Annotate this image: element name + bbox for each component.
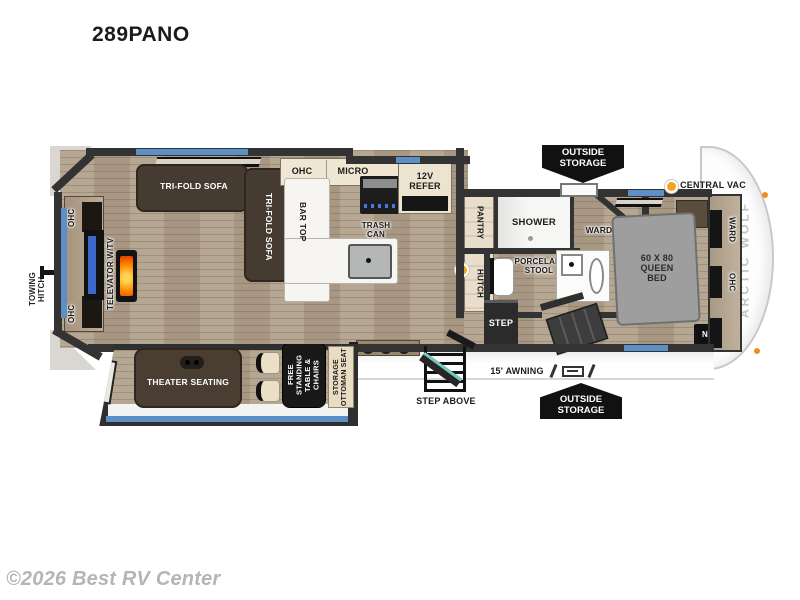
- trifold-sofa-v-label: TRI-FOLD SOFA: [260, 186, 276, 268]
- tv-screen: [88, 236, 96, 294]
- storage-hatch: [560, 183, 598, 197]
- theater-slide-window-strip: [106, 416, 348, 422]
- sink-faucet: [366, 258, 371, 263]
- central-vac-dot: [665, 180, 678, 193]
- outside-storage-badge-bottom: OUTSIDE STORAGE: [540, 383, 622, 419]
- top-wall-jog: [346, 148, 353, 164]
- cupholder-1: [185, 360, 190, 365]
- step-above-label: STEP ABOVE: [408, 394, 484, 408]
- window-strip-rear: [61, 208, 67, 318]
- window-strip-sofa: [136, 149, 248, 155]
- toilet: [492, 258, 514, 296]
- theater-slide: THEATER SEATING FREE STANDING TABLE & CH…: [94, 344, 358, 426]
- fireplace-flame: [120, 256, 133, 296]
- page-title: 289PANO: [92, 20, 252, 50]
- window-strip-bedroom-top: [628, 190, 664, 196]
- step-rung-5: [427, 389, 463, 392]
- window-strip-bedroom-bottom: [624, 345, 668, 351]
- window-strip-kitchen: [396, 157, 420, 163]
- ottoman-label: STORAGE OTTOMAN SEAT: [329, 347, 353, 407]
- bedroom-window-right-2: [710, 266, 722, 298]
- range-top: [363, 179, 397, 188]
- vanity-oval-sink: [589, 258, 604, 294]
- step-rung-1: [427, 353, 463, 356]
- shower-label: SHOWER: [500, 216, 568, 230]
- theater-seating-label: THEATER SEATING: [132, 376, 244, 390]
- pantry-label: PANTRY: [470, 198, 488, 248]
- dining-chair-2: [256, 380, 280, 402]
- outside-storage-badge-top: OUTSIDE STORAGE: [542, 145, 624, 183]
- theater-console: [180, 356, 204, 369]
- watermark: ©2026 Best RV Center: [6, 566, 246, 592]
- shower-drain: [528, 236, 533, 241]
- ohc-cabinet-top: [82, 202, 102, 232]
- bedroom-window-right-1: [710, 210, 722, 248]
- vanity-faucet: [569, 262, 574, 267]
- queen-bed-label: 60 X 80 QUEEN BED: [624, 248, 690, 288]
- step-down-wall: [456, 148, 464, 318]
- marker-light-bottom: [754, 348, 760, 354]
- hitch-icon-bar: [40, 266, 44, 279]
- table-label: FREE STANDING TABLE & CHAIRS: [284, 344, 324, 406]
- trash-can-label: TRASH CAN: [352, 220, 400, 242]
- marker-light-top: [762, 192, 768, 198]
- towing-hitch-label: TOWING HITCH: [26, 258, 50, 320]
- bedroom-ohc-label: OHC: [724, 262, 738, 302]
- trifold-sofa-h-label: TRI-FOLD SOFA: [146, 180, 242, 194]
- ohc-cabinet-bottom: [82, 296, 102, 328]
- kitchen-ohc-label: OHC: [286, 164, 318, 178]
- refer-label: 12V REFER: [402, 168, 448, 194]
- range-knobs: [364, 204, 396, 208]
- dining-chair-1: [256, 352, 280, 374]
- bar-top-label: BAR TOP: [294, 192, 310, 252]
- entry-steps: [424, 346, 466, 392]
- cupholder-2: [194, 360, 199, 365]
- floorplan-page: 289PANO ©2026 Best RV Center ARCTIC WOLF…: [0, 0, 800, 600]
- refrigerator-front: [402, 196, 448, 211]
- awning-label: 15' AWNING: [486, 364, 548, 378]
- awning-bracket-dash: [567, 370, 578, 372]
- step-label: STEP: [484, 316, 518, 330]
- central-vac-label: CENTRAL VAC: [680, 178, 746, 192]
- bedroom-ward-label: WARD: [724, 202, 738, 258]
- bedroom-window: [615, 198, 663, 207]
- toilet-tank: [490, 258, 494, 294]
